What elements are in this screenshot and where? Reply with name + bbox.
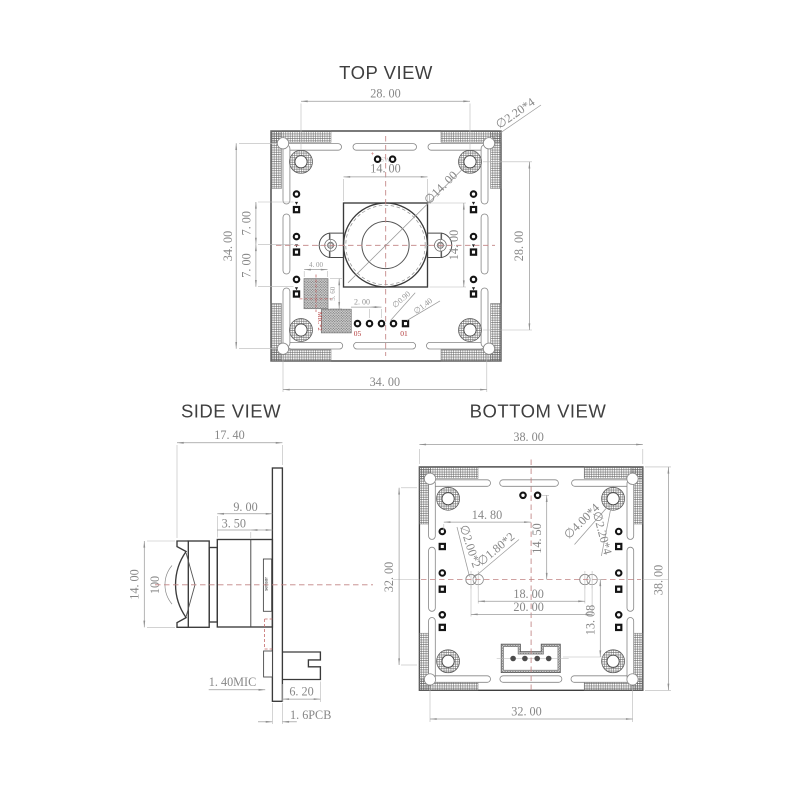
svg-text:38. 00: 38. 00 [652,565,666,595]
svg-text:32. 00: 32. 00 [382,562,396,592]
svg-text:20. 00: 20. 00 [513,600,543,614]
svg-text:05: 05 [354,329,362,338]
svg-text:17. 40: 17. 40 [214,428,244,442]
svg-text:14. 50: 14. 50 [530,523,544,553]
svg-text:4. 00: 4. 00 [309,261,324,269]
svg-text:BOTTOM VIEW: BOTTOM VIEW [470,401,607,422]
svg-text:38. 00: 38. 00 [513,430,543,444]
svg-text:14. 80: 14. 80 [472,508,502,522]
svg-text:28. 00: 28. 00 [370,87,400,101]
svg-text:34. 00: 34. 00 [370,375,400,389]
svg-text:TOP VIEW: TOP VIEW [339,62,433,83]
svg-text:14. 00: 14. 00 [370,162,400,176]
svg-text:14. 00: 14. 00 [128,569,142,599]
svg-text:+: + [371,151,375,158]
svg-text:01: 01 [400,329,408,338]
svg-text:7. 00: 7. 00 [239,211,253,235]
svg-text:14. 00: 14. 00 [447,230,461,260]
svg-text:5. 60: 5. 60 [329,286,337,301]
svg-text:1. 40MIC: 1. 40MIC [209,675,256,689]
svg-text:28. 00: 28. 00 [512,231,526,261]
svg-text:6. 20: 6. 20 [289,685,313,699]
svg-text:1. 6PCB: 1. 6PCB [290,708,331,722]
svg-text:MIC*2: MIC*2 [316,312,323,331]
svg-text:7. 00: 7. 00 [239,253,253,277]
svg-text:18. 00: 18. 00 [513,587,543,601]
svg-text:9. 00: 9. 00 [233,500,257,514]
svg-text:SIDE VIEW: SIDE VIEW [181,401,281,422]
svg-text:34. 00: 34. 00 [221,231,235,261]
svg-text:13. 08: 13. 08 [584,605,598,635]
svg-text:3. 50: 3. 50 [222,516,246,530]
svg-text:32. 00: 32. 00 [511,704,541,718]
svg-text:2. 00: 2. 00 [354,297,370,306]
svg-text:sensor: sensor [264,577,269,591]
